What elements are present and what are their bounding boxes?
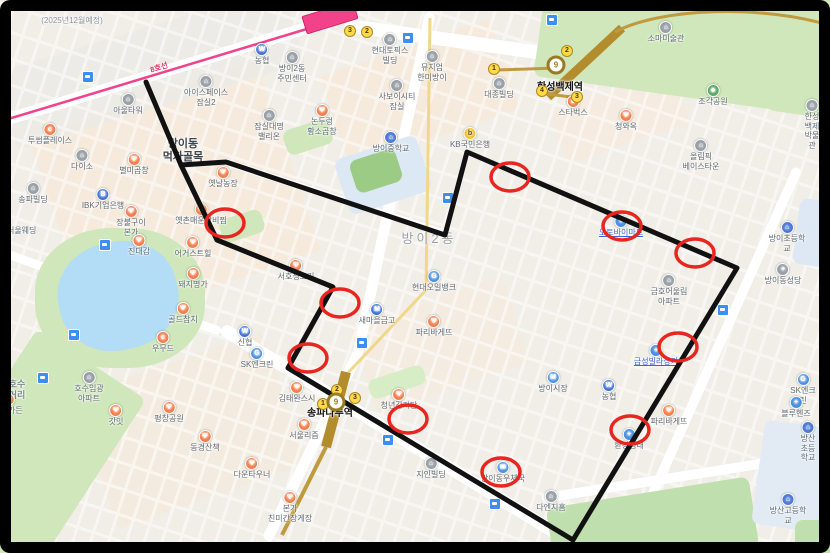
red-circle-marker [611,416,649,444]
subway-exit-badge: 1 [488,63,500,75]
line9-station-badge: 9 [327,393,346,412]
subway-exit-badge: 2 [361,26,373,38]
subway-exit-badge: 2 [561,45,573,57]
subway-exit-badge: 3 [344,25,356,37]
route-annotation-layer [0,0,830,553]
map-screenshot: 8호선 (2025년12월예정)⌂아이스페이스 잠실2⌂아울타워W농협⌂방이2동… [0,0,830,553]
route-outline [181,152,737,540]
subway-exit-badge: 4 [536,85,548,97]
route-tail [146,82,181,165]
subway-exit-badge: 3 [571,91,583,103]
red-circle-marker [206,209,244,237]
line9-station-badge: 9 [547,56,566,75]
red-circle-marker [389,405,427,433]
subway-exit-badge: 3 [349,392,361,404]
red-circle-marker [482,458,520,486]
map-canvas[interactable]: 8호선 (2025년12월예정)⌂아이스페이스 잠실2⌂아울타워W농협⌂방이2동… [0,0,830,553]
